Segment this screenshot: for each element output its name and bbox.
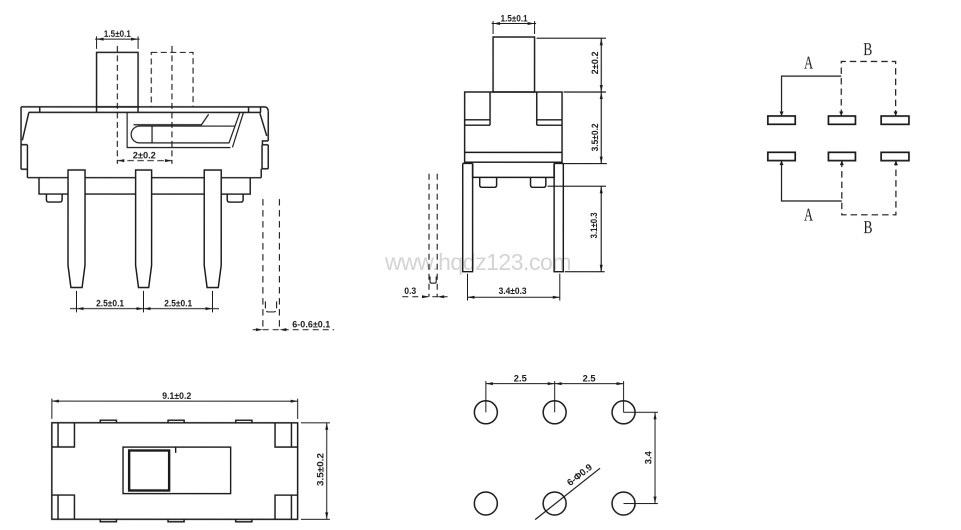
svg-text:1.5±0.1: 1.5±0.1 xyxy=(104,29,132,40)
svg-text:3.1±0.3: 3.1±0.3 xyxy=(589,212,600,238)
svg-text:3.4: 3.4 xyxy=(643,451,654,465)
svg-text:2±0.2: 2±0.2 xyxy=(133,150,156,161)
svg-text:6-0.6±0.1: 6-0.6±0.1 xyxy=(292,319,331,330)
svg-text:B: B xyxy=(864,217,873,237)
svg-text:1.5±0.1: 1.5±0.1 xyxy=(501,13,529,24)
svg-text:2.5: 2.5 xyxy=(514,373,528,384)
svg-text:A: A xyxy=(804,53,813,73)
svg-text:0.3: 0.3 xyxy=(404,286,416,297)
svg-text:3.5±0.2: 3.5±0.2 xyxy=(590,123,601,151)
svg-text:2.5±0.1: 2.5±0.1 xyxy=(164,298,193,309)
svg-text:A: A xyxy=(804,205,813,225)
svg-text:2.5: 2.5 xyxy=(583,373,597,384)
svg-text:3.4±0.3: 3.4±0.3 xyxy=(499,286,527,297)
svg-text:2.5±0.1: 2.5±0.1 xyxy=(96,298,125,309)
svg-text:2±0.2: 2±0.2 xyxy=(590,51,601,74)
svg-text:www.hqdz123.com: www.hqdz123.com xyxy=(384,249,572,275)
svg-text:B: B xyxy=(863,39,872,59)
svg-text:3.5±0.2: 3.5±0.2 xyxy=(316,453,327,486)
svg-text:9.1±0.2: 9.1±0.2 xyxy=(162,391,191,402)
